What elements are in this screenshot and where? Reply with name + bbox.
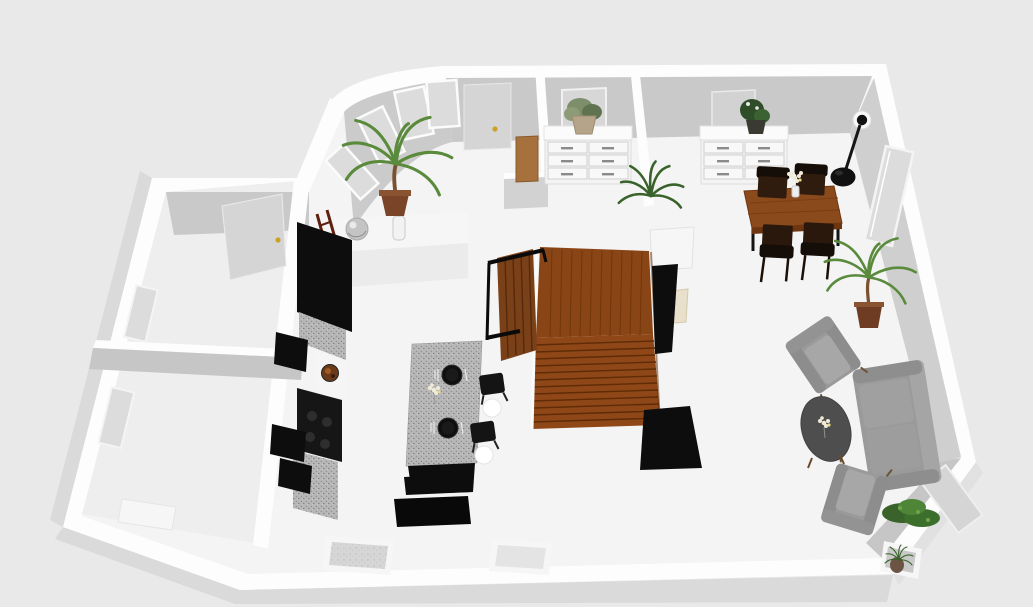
dining-chair-1[interactable] xyxy=(755,166,790,199)
kitchen-benches[interactable] xyxy=(394,474,472,527)
lamp-shade xyxy=(831,168,856,187)
decor-sphere[interactable] xyxy=(346,218,368,240)
annex-open-door-leaf[interactable] xyxy=(222,194,286,280)
stair-landing xyxy=(536,247,653,338)
window-glass xyxy=(329,542,388,569)
hall-door-handle xyxy=(492,126,497,131)
bench-2 xyxy=(394,496,471,527)
floorplan-render-stage xyxy=(0,0,1033,607)
hall-entry-door[interactable] xyxy=(464,83,511,150)
bench-1 xyxy=(404,474,472,495)
staircase[interactable] xyxy=(532,247,661,429)
bay-window-4[interactable] xyxy=(426,80,459,128)
island-top xyxy=(406,341,482,466)
lamp-base xyxy=(857,115,867,125)
dresser-dressing-room[interactable] xyxy=(544,126,632,184)
pendant-light-1 xyxy=(483,399,501,417)
annex-door-handle xyxy=(275,237,280,242)
pendant-light-2 xyxy=(475,446,493,464)
window-glass xyxy=(495,545,546,569)
kitchen-island[interactable] xyxy=(406,341,482,494)
cooking-plate xyxy=(322,365,339,382)
bottom-window-kitchen[interactable] xyxy=(322,536,394,575)
bottom-window-hall[interactable] xyxy=(489,539,552,575)
wood-cabinet-hall[interactable] xyxy=(516,136,538,182)
